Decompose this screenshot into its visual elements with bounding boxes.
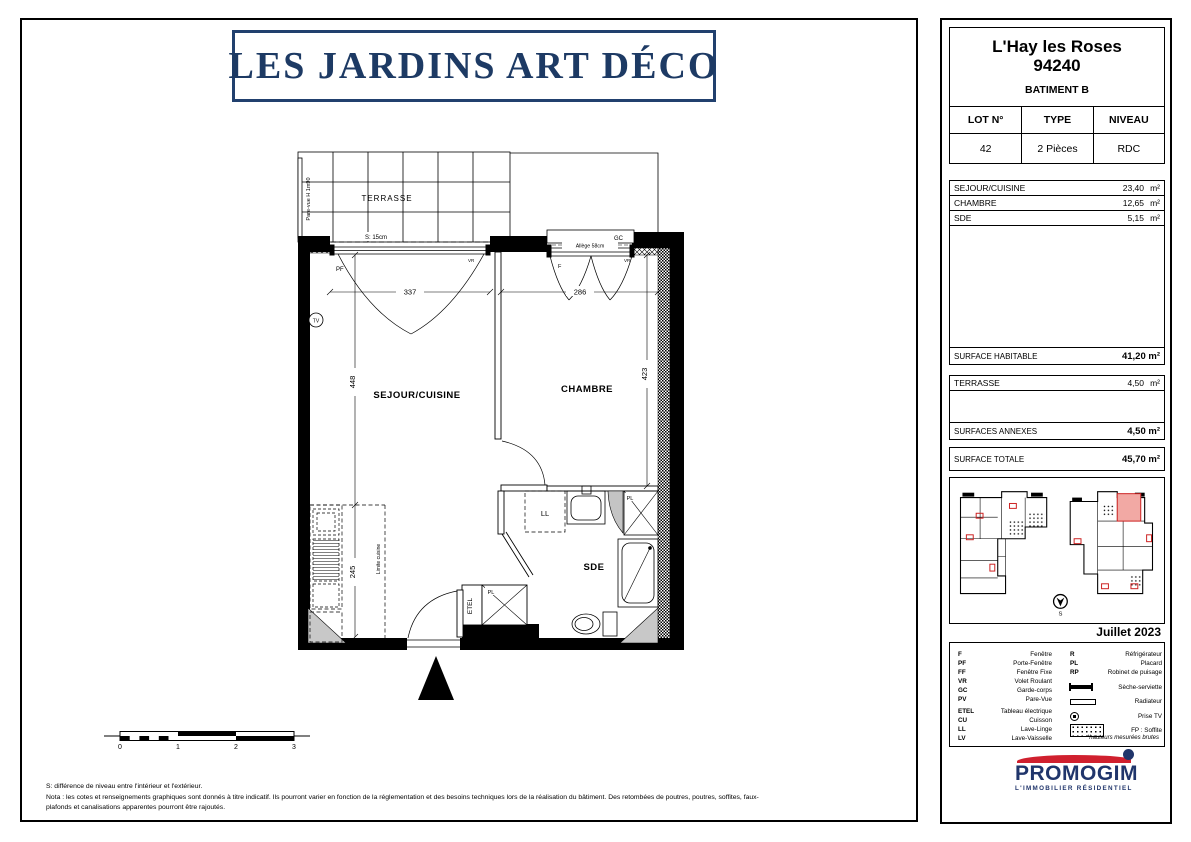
svg-text:286: 286 — [574, 288, 587, 297]
legend-item: PLPlacard — [1070, 659, 1162, 668]
table-row: SEJOUR/CUISINE 23,40 m² — [950, 181, 1164, 196]
floor-plan: Pare-vue H 1m90 TERRASSE S: 15cm — [272, 132, 712, 712]
allege-label: Allège 58cm — [576, 244, 605, 250]
sde-door — [502, 532, 533, 577]
legend-item: LVLave-Vaisselle — [958, 734, 1052, 743]
city: L'Hay les Roses — [950, 37, 1164, 56]
entrance-opening — [407, 636, 460, 652]
svg-text:245: 245 — [348, 566, 357, 579]
svg-text:448: 448 — [348, 376, 357, 389]
sejour-label: SEJOUR/CUISINE — [373, 390, 460, 401]
legend-item: FFFenêtre Fixe — [958, 668, 1052, 677]
legend-item: GCGarde-corps — [958, 686, 1052, 695]
building-name: BATIMENT B — [950, 84, 1164, 96]
sde-label: SDE — [583, 562, 604, 573]
legend-item: PFPorte-Fenêtre — [958, 659, 1052, 668]
svg-text:423: 423 — [640, 368, 649, 381]
tv-socket: TV — [309, 313, 323, 327]
logo-tagline: L'IMMOBILIER RÉSIDENTIEL — [1015, 785, 1145, 792]
scale-tick-2: 2 — [234, 744, 238, 751]
scale-tick-0: 0 — [118, 744, 122, 751]
threshold-note: S: 15cm — [354, 232, 398, 241]
soffit-corner-right — [620, 608, 658, 643]
logo-dot-icon — [1123, 749, 1134, 760]
svg-text:TV: TV — [313, 319, 320, 325]
footnote-line-2: Nota : les cotes et renseignements graph… — [46, 793, 918, 804]
vr-label-1: VR — [468, 258, 475, 263]
logo-swoosh-icon — [1017, 755, 1131, 763]
legend-item: RPRobinet de puisage — [1070, 668, 1162, 677]
dimensions — [327, 252, 661, 640]
project-title-box: LES JARDINS ART DÉCO — [232, 30, 716, 102]
threshold-label: S: 15cm — [365, 235, 387, 241]
project-info-box: L'Hay les Roses 94240 BATIMENT B LOT N° … — [949, 27, 1165, 164]
ll-label: LL — [541, 509, 549, 518]
footnotes: S: différence de niveau entre l'intérieu… — [46, 782, 918, 814]
scale-tick-1: 1 — [176, 744, 180, 751]
legend-item: Radiateur — [1070, 695, 1162, 710]
promogim-logo: PROMOGIM L'IMMOBILIER RÉSIDENTIEL — [1015, 755, 1145, 792]
room-surfaces-box: SEJOUR/CUISINE 23,40 m² CHAMBRE 12,65 m²… — [949, 180, 1165, 365]
drawing-sheet: LES JARDINS ART DÉCO — [20, 18, 918, 822]
pl-label-sde: PL — [625, 493, 636, 502]
legend-item: Prise TV — [1070, 709, 1162, 724]
toilet — [572, 612, 617, 636]
legend-item: RRéfrigérateur — [1070, 650, 1162, 659]
vr-label-2: VR — [624, 258, 631, 263]
towel-dryer-icon — [1070, 685, 1092, 689]
svg-text:PL: PL — [488, 590, 495, 596]
washbasin — [567, 486, 605, 524]
washing-machine: LL — [525, 491, 565, 532]
etel-label: ETEL — [467, 597, 474, 614]
site-plan-box: S — [949, 477, 1165, 624]
pare-vue-label: Pare-vue H 1m90 — [306, 177, 312, 220]
info-panel: L'Hay les Roses 94240 BATIMENT B LOT N° … — [940, 18, 1172, 824]
logo-name: PROMOGIM — [1015, 763, 1145, 784]
legend-item: Sèche-serviette — [1070, 680, 1162, 695]
table-row: CHAMBRE 12,65 m² — [950, 196, 1164, 211]
surfaces-annexes-row: SURFACES ANNEXES 4,50 m² — [950, 422, 1164, 439]
type-header: TYPE — [1021, 107, 1092, 134]
pl-label-entry: PL — [485, 587, 497, 596]
legend-item: CUCuisson — [958, 716, 1052, 725]
legend-item: ETELTableau électrique — [958, 707, 1052, 716]
annex-surfaces-box: TERRASSE 4,50 m² SURFACES ANNEXES 4,50 m… — [949, 375, 1165, 440]
lot-table: LOT N° TYPE NIVEAU 42 2 Pièces RDC — [950, 106, 1164, 163]
lot-header: LOT N° — [950, 107, 1021, 134]
site-plan: S — [950, 478, 1163, 622]
project-title: LES JARDINS ART DÉCO — [229, 44, 720, 88]
terrace — [298, 152, 658, 242]
legend-right-column: RRéfrigérateur PLPlacard RPRobinet de pu… — [1070, 650, 1162, 738]
scale-bar: 0 1 2 3 — [102, 720, 312, 752]
legend-item: FFenêtre — [958, 650, 1052, 659]
postal-code: 94240 — [950, 56, 1164, 75]
f-label: F — [558, 264, 562, 270]
type-value: 2 Pièces — [1021, 134, 1092, 163]
niveau-header: NIVEAU — [1093, 107, 1164, 134]
footnote-line-1: S: différence de niveau entre l'intérieu… — [46, 782, 918, 793]
site-plan-highlight-unit — [1117, 494, 1141, 521]
entrance-arrow — [418, 656, 454, 700]
legend-left-column: FFenêtre PFPorte-Fenêtre FFFenêtre Fixe … — [958, 650, 1052, 743]
terrace-label: TERRASSE — [361, 194, 412, 203]
entrance-door — [408, 590, 463, 638]
table-row: SDE 5,15 m² — [950, 211, 1164, 226]
niveau-value: RDC — [1093, 134, 1164, 163]
site-plan-building-left — [961, 492, 1047, 594]
plan-date: Juillet 2023 — [1096, 625, 1161, 639]
pare-vue-screen: Pare-vue H 1m90 — [298, 158, 312, 238]
svg-text:337: 337 — [404, 288, 417, 297]
legend-item: LLLave-Linge — [958, 725, 1052, 734]
legend-item: PVPare-Vue — [958, 695, 1052, 704]
radiator-icon — [1070, 699, 1096, 705]
tv-socket-icon — [1070, 712, 1079, 721]
table-row: TERRASSE 4,50 m² — [950, 376, 1164, 391]
plan-sheet-page: LES JARDINS ART DÉCO — [0, 0, 1191, 842]
pf-label: PF — [336, 267, 344, 273]
north-arrow-icon: S — [1054, 595, 1068, 618]
shower — [618, 539, 658, 607]
sde-column — [608, 491, 623, 533]
chambre-label: CHAMBRE — [561, 384, 613, 395]
north-letter: S — [1058, 612, 1062, 618]
legend-footnote: *hauteurs mesurées brutes — [1087, 735, 1159, 741]
legend-item: VRVolet Roulant — [958, 677, 1052, 686]
footnote-line-3: plafonds et canalisations apparentes pou… — [46, 803, 918, 814]
soffit-corner-left — [308, 608, 346, 643]
lot-value: 42 — [950, 134, 1021, 163]
scale-tick-3: 3 — [292, 744, 296, 751]
svg-text:PL: PL — [627, 496, 634, 502]
legend-box: FFenêtre PFPorte-Fenêtre FFFenêtre Fixe … — [949, 642, 1165, 747]
surface-habitable-row: SURFACE HABITABLE 41,20 m² — [950, 347, 1164, 364]
wall-insulation — [310, 246, 670, 642]
kitchen-limit-label: Limite cuisine — [376, 544, 382, 575]
surface-totale-box: SURFACE TOTALE 45,70 m² — [949, 447, 1165, 471]
